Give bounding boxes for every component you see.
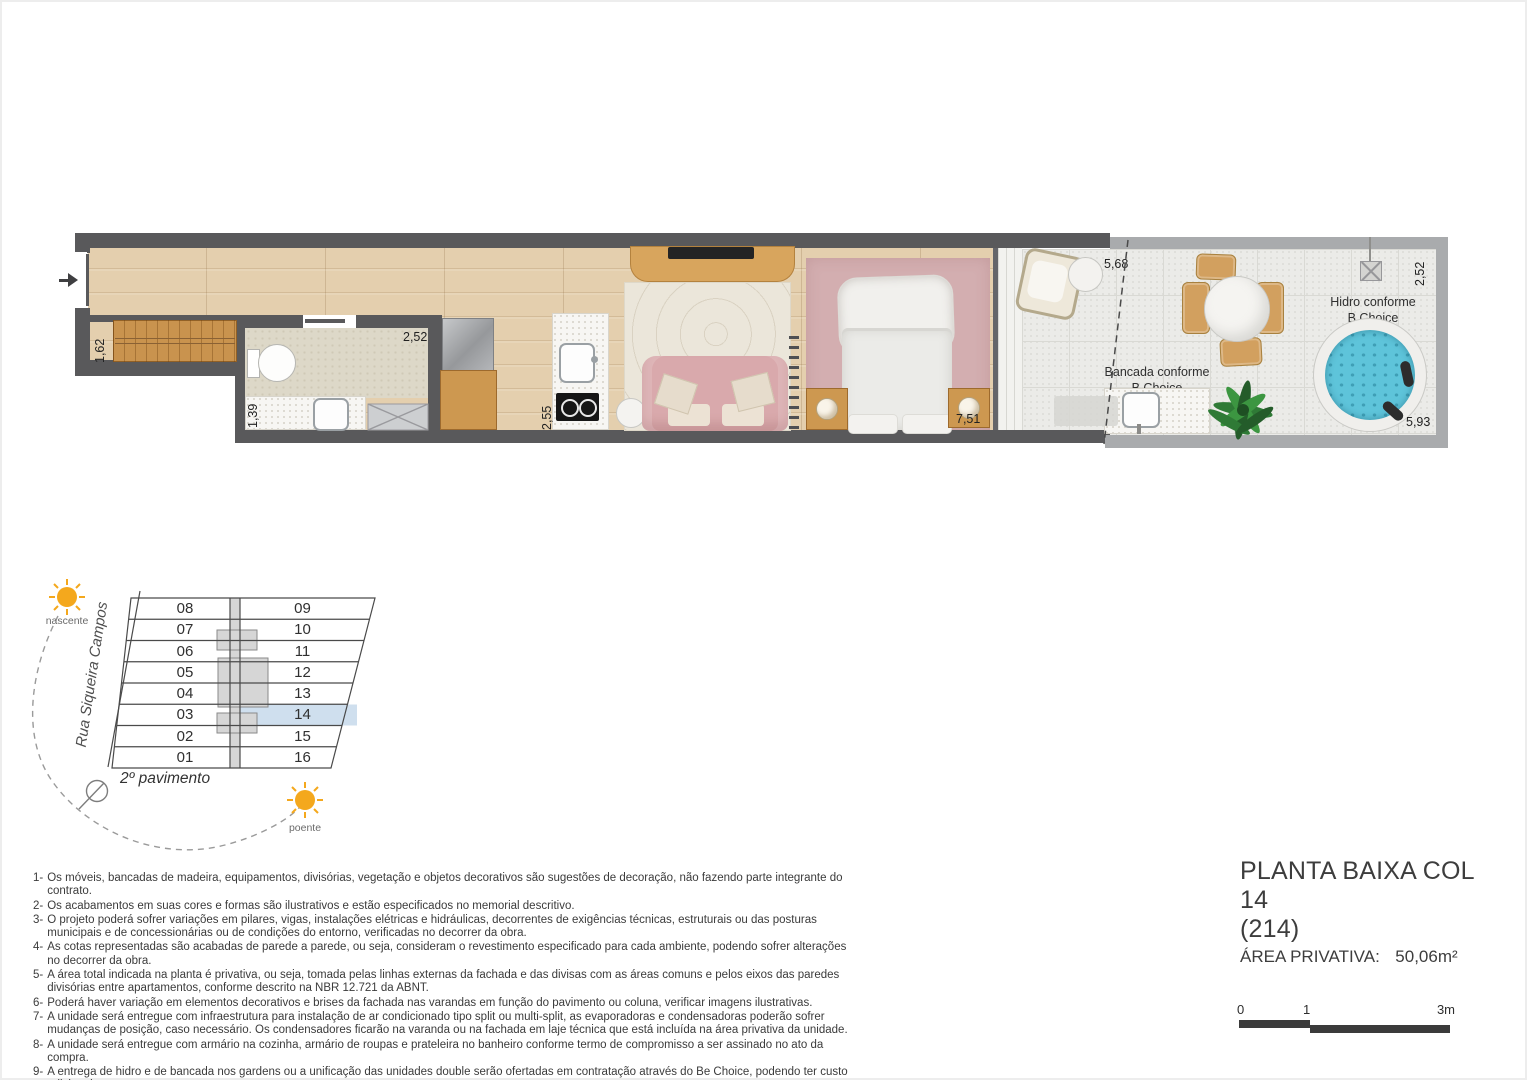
sun-west-icon [287, 782, 323, 818]
floor-plan: 1,62 2,52 1,39 2,55 [58, 228, 1450, 450]
keyplan-unit-11: 11 [245, 641, 360, 662]
note-text: A entrega de hidro e de bancada nos gard… [47, 1066, 851, 1080]
note-text: O projeto poderá sofrer variações em pil… [47, 914, 851, 941]
private-area-label: ÁREA PRIVATIVA: [1240, 947, 1380, 966]
keyplan-unit-07: 07 [140, 619, 230, 640]
keyplan-unit-05: 05 [140, 662, 230, 683]
note-number: 6- [33, 997, 43, 1010]
private-area: ÁREA PRIVATIVA: 50,06m² [1240, 947, 1490, 967]
note-item: 6-Poderá haver variação em elementos dec… [33, 997, 851, 1010]
sun-east-icon [49, 579, 85, 615]
keyplan-unit-12: 12 [245, 662, 360, 683]
scale-segment-1 [1239, 1020, 1310, 1028]
note-text: As cotas representadas são acabadas de p… [47, 941, 851, 968]
keyplan-unit-03: 03 [140, 704, 230, 725]
floor-label: 2º pavimento [120, 770, 210, 788]
note-item: 2-Os acabamentos em suas cores e formas … [33, 900, 851, 913]
scale-start-label: 0 [1237, 1002, 1244, 1017]
plant-icon [1206, 379, 1276, 440]
note-item: 3-O projeto poderá sofrer variações em p… [33, 914, 851, 941]
unit-number: (214) [1240, 915, 1490, 944]
note-item: 1-Os móveis, bancadas de madeira, equipa… [33, 872, 851, 899]
sun-east-label: nascente [32, 615, 102, 627]
note-text: Os móveis, bancadas de madeira, equipame… [47, 872, 851, 899]
coverage-dashed-line [1104, 240, 1128, 444]
keyplan-unit-13: 13 [245, 683, 360, 704]
sun-west-label: poente [275, 822, 335, 834]
keyplan-unit-14: 14 [245, 704, 360, 725]
keyplan: 08 07 06 05 04 03 02 01 09 10 11 12 13 1… [20, 570, 400, 875]
title-block: PLANTA BAIXA COL 14 (214) ÁREA PRIVATIVA… [1240, 857, 1490, 967]
keyplan-unit-04: 04 [140, 683, 230, 704]
note-text: Poderá haver variação em elementos decor… [47, 997, 812, 1010]
note-number: 8- [33, 1039, 43, 1066]
keyplan-unit-10: 10 [245, 619, 360, 640]
keyplan-unit-16: 16 [245, 747, 360, 768]
private-area-value: 50,06m² [1395, 947, 1457, 966]
scale-segment-2 [1310, 1025, 1450, 1033]
plan-sheet: 1,62 2,52 1,39 2,55 [0, 0, 1527, 1080]
note-item: 8-A unidade será entregue com armário na… [33, 1039, 851, 1066]
keyplan-unit-01: 01 [140, 747, 230, 768]
keyplan-unit-06: 06 [140, 641, 230, 662]
note-item: 5-A área total indicada na planta é priv… [33, 969, 851, 996]
note-number: 2- [33, 900, 43, 913]
note-text: A área total indicada na planta é privat… [47, 969, 851, 996]
note-item: 7-A unidade será entregue com infraestru… [33, 1011, 851, 1038]
disclaimer-notes: 1-Os móveis, bancadas de madeira, equipa… [33, 872, 851, 1080]
north-indicator-icon [79, 781, 108, 810]
note-number: 1- [33, 872, 43, 899]
note-number: 3- [33, 914, 43, 941]
note-number: 7- [33, 1011, 43, 1038]
keyplan-unit-08: 08 [140, 598, 230, 619]
note-number: 5- [33, 969, 43, 996]
note-item: 9-A entrega de hidro e de bancada nos ga… [33, 1066, 851, 1080]
keyplan-unit-09: 09 [245, 598, 360, 619]
scale-end-label: 3m [1437, 1002, 1455, 1017]
note-number: 4- [33, 941, 43, 968]
scale-bar: 0 1 3m [1237, 1002, 1455, 1038]
note-text: A unidade será entregue com infraestrutu… [47, 1011, 851, 1038]
note-number: 9- [33, 1066, 43, 1080]
note-item: 4-As cotas representadas são acabadas de… [33, 941, 851, 968]
plan-overlay [58, 228, 1450, 450]
note-text: Os acabamentos em suas cores e formas sã… [47, 900, 574, 913]
plan-title: PLANTA BAIXA COL 14 [1240, 857, 1490, 915]
note-text: A unidade será entregue com armário na c… [47, 1039, 851, 1066]
keyplan-unit-15: 15 [245, 726, 360, 747]
keyplan-unit-02: 02 [140, 726, 230, 747]
scale-mid-label: 1 [1303, 1002, 1310, 1017]
